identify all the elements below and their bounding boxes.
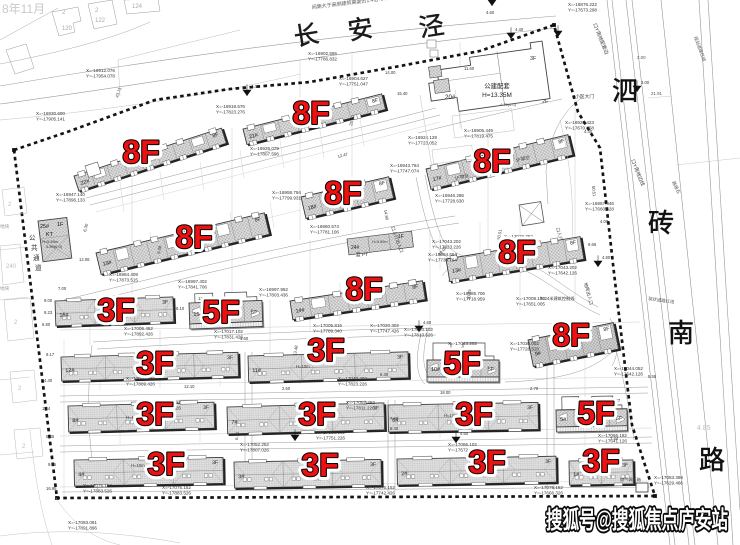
svg-text:公建配套: 公建配套 bbox=[484, 81, 510, 90]
svg-text:安: 安 bbox=[346, 14, 375, 46]
svg-text:5F: 5F bbox=[488, 367, 494, 373]
svg-text:X=-16926.079: X=-16926.079 bbox=[250, 146, 279, 151]
svg-text:8F: 8F bbox=[498, 234, 535, 270]
svg-text:4#: 4# bbox=[78, 472, 84, 478]
svg-text:1.44: 1.44 bbox=[42, 406, 51, 411]
svg-text:3F: 3F bbox=[455, 396, 492, 432]
svg-text:3F: 3F bbox=[97, 292, 134, 328]
svg-text:3F: 3F bbox=[162, 300, 168, 306]
svg-text:X=-16984.409: X=-16984.409 bbox=[109, 272, 138, 277]
svg-text:KT: KT bbox=[46, 232, 54, 238]
svg-text:砖: 砖 bbox=[648, 208, 674, 238]
svg-text:10#: 10# bbox=[431, 367, 440, 373]
svg-text:8.10: 8.10 bbox=[176, 306, 185, 311]
svg-text:6.30: 6.30 bbox=[380, 372, 389, 377]
svg-text:X=-16967.846: X=-16967.846 bbox=[585, 201, 614, 206]
svg-text:Y=-17799.931: Y=-17799.931 bbox=[272, 195, 301, 200]
svg-text:蓝 PT: 蓝 PT bbox=[356, 251, 368, 257]
svg-text:4.40: 4.40 bbox=[251, 84, 260, 89]
svg-text:燃气调压箱: 燃气调压箱 bbox=[620, 476, 641, 483]
svg-text:8F: 8F bbox=[473, 143, 510, 179]
svg-text:H=13.35M: H=13.35M bbox=[482, 92, 512, 99]
svg-text:泾: 泾 bbox=[417, 11, 446, 43]
svg-text:X=-16946.286: X=-16946.286 bbox=[435, 193, 464, 198]
svg-text:1#: 1# bbox=[573, 472, 579, 478]
svg-text:X=-16958.794: X=-16958.794 bbox=[272, 190, 301, 195]
svg-text:3#: 3# bbox=[238, 474, 244, 480]
svg-text:X=-16984.564: X=-16984.564 bbox=[428, 252, 457, 257]
svg-text:小区大门: 小区大门 bbox=[575, 93, 594, 100]
svg-text:9.25: 9.25 bbox=[48, 462, 57, 467]
svg-text:7#: 7# bbox=[231, 420, 237, 426]
svg-text:3F: 3F bbox=[298, 396, 335, 432]
svg-text:2.50: 2.50 bbox=[282, 386, 291, 391]
svg-text:3F: 3F bbox=[136, 345, 173, 381]
svg-text:240: 240 bbox=[6, 264, 17, 270]
svg-text:4.40: 4.40 bbox=[515, 27, 524, 32]
svg-text:Y=-17747.074: Y=-17747.074 bbox=[390, 168, 419, 173]
svg-text:Y=-17642.126: Y=-17642.126 bbox=[548, 270, 577, 275]
svg-text:Y=-17629.466: Y=-17629.466 bbox=[654, 480, 683, 485]
svg-text:X=-17052.252: X=-17052.252 bbox=[240, 442, 269, 447]
svg-text:9#: 9# bbox=[534, 351, 541, 358]
svg-text:5F: 5F bbox=[202, 294, 239, 330]
svg-text:50.51: 50.51 bbox=[591, 186, 597, 198]
svg-text:5.89(6.0): 5.89(6.0) bbox=[46, 244, 63, 249]
svg-text:3F: 3F bbox=[397, 354, 403, 360]
svg-text:Y=-17889.426: Y=-17889.426 bbox=[126, 381, 155, 386]
svg-text:Y=-17896.133: Y=-17896.133 bbox=[56, 197, 85, 202]
svg-text:X=-16960.574: X=-16960.574 bbox=[310, 224, 339, 229]
svg-text:3F: 3F bbox=[582, 443, 619, 479]
svg-text:Y=-17660.828: Y=-17660.828 bbox=[585, 206, 614, 211]
svg-text:道: 道 bbox=[35, 263, 42, 272]
svg-text:Y=-17823.276: Y=-17823.276 bbox=[216, 109, 245, 114]
svg-text:8F: 8F bbox=[345, 271, 382, 307]
svg-text:4.75(6.0): 4.75(6.0) bbox=[500, 102, 517, 107]
svg-text:Y=-17823.226: Y=-17823.226 bbox=[338, 381, 367, 386]
svg-text:Y=-17873.515: Y=-17873.515 bbox=[109, 277, 138, 282]
svg-text:X=-17075.152: X=-17075.152 bbox=[162, 485, 191, 490]
svg-text:3F: 3F bbox=[203, 405, 209, 411]
svg-text:Y=-17666.326: Y=-17666.326 bbox=[534, 490, 563, 495]
svg-text:X=-16905.449: X=-16905.449 bbox=[464, 128, 493, 133]
svg-text:15#: 15# bbox=[193, 312, 202, 318]
svg-text:X=-17005.816: X=-17005.816 bbox=[313, 323, 342, 328]
svg-text:H=10m: H=10m bbox=[131, 463, 145, 468]
svg-text:Y=-17723.052: Y=-17723.052 bbox=[408, 140, 437, 145]
svg-text:X=-16912.076: X=-16912.076 bbox=[86, 68, 115, 73]
svg-text:Y=-17781.106: Y=-17781.106 bbox=[310, 229, 339, 234]
svg-text:X=-17043.202: X=-17043.202 bbox=[548, 265, 577, 270]
svg-text:5F: 5F bbox=[443, 345, 480, 381]
svg-text:18.00: 18.00 bbox=[440, 390, 451, 395]
svg-text:5F: 5F bbox=[251, 310, 257, 316]
svg-text:16#: 16# bbox=[59, 312, 68, 318]
svg-text:X=-17020.302: X=-17020.302 bbox=[370, 323, 399, 328]
svg-text:4.60: 4.60 bbox=[423, 320, 432, 325]
svg-text:2#: 2# bbox=[401, 471, 407, 477]
svg-text:8F: 8F bbox=[412, 284, 419, 291]
svg-text:南: 南 bbox=[668, 318, 694, 348]
svg-text:搜狐号@搜狐焦点庐安站: 搜狐号@搜狐焦点庐安站 bbox=[546, 506, 728, 534]
svg-text:Y=-17819.475: Y=-17819.475 bbox=[464, 133, 493, 138]
svg-text:3F: 3F bbox=[136, 396, 173, 432]
svg-text:3F: 3F bbox=[227, 355, 233, 361]
svg-text:Y=-17728.528: Y=-17728.528 bbox=[510, 346, 539, 351]
svg-text:8F: 8F bbox=[570, 240, 577, 247]
svg-text:Y=-17892.426: Y=-17892.426 bbox=[124, 331, 153, 336]
svg-text:4.60: 4.60 bbox=[486, 10, 495, 15]
svg-text:X=-16997.952: X=-16997.952 bbox=[259, 287, 288, 292]
svg-text:Y=-17823.226: Y=-17823.226 bbox=[432, 244, 461, 249]
svg-text:X=-17075.152: X=-17075.152 bbox=[366, 485, 395, 490]
svg-text:3F: 3F bbox=[527, 405, 533, 411]
svg-text:X=-17044.052: X=-17044.052 bbox=[614, 366, 643, 371]
svg-text:20#: 20# bbox=[445, 94, 456, 101]
svg-text:3F: 3F bbox=[370, 462, 376, 468]
svg-text:9.00: 9.00 bbox=[44, 298, 53, 303]
svg-text:Y=-17651.005: Y=-17651.005 bbox=[516, 301, 545, 306]
svg-text:Y=-17642.126: Y=-17642.126 bbox=[614, 371, 643, 376]
svg-text:Y=-17670.358: Y=-17670.358 bbox=[565, 125, 594, 130]
svg-text:H=5.89m: H=5.89m bbox=[372, 240, 388, 244]
svg-text:X=-16902.565: X=-16902.565 bbox=[308, 51, 337, 56]
svg-text:2.70: 2.70 bbox=[530, 386, 539, 391]
svg-text:Y=-17841.706: Y=-17841.706 bbox=[178, 284, 207, 289]
svg-text:X=-17043.202: X=-17043.202 bbox=[338, 376, 367, 381]
svg-text:Y=-17807.026: Y=-17807.026 bbox=[240, 447, 269, 452]
svg-text:X=-17020.102: X=-17020.102 bbox=[404, 327, 433, 332]
svg-text:Y=-17747.426: Y=-17747.426 bbox=[370, 328, 399, 333]
svg-text:25#: 25# bbox=[40, 224, 49, 230]
svg-text:Y=-17734.794: Y=-17734.794 bbox=[428, 257, 457, 262]
svg-text:9.23: 9.23 bbox=[44, 310, 53, 315]
svg-text:h≤24米建筑控制线: h≤24米建筑控制线 bbox=[540, 295, 575, 302]
svg-text:X=-16943.764: X=-16943.764 bbox=[390, 163, 419, 168]
svg-text:Y=-17807.596: Y=-17807.596 bbox=[250, 151, 279, 156]
svg-text:5.35: 5.35 bbox=[46, 434, 55, 439]
svg-text:3.00: 3.00 bbox=[637, 55, 646, 60]
svg-text:X=-16876.222: X=-16876.222 bbox=[568, 2, 597, 7]
svg-text:X=-16904.627: X=-16904.627 bbox=[339, 76, 368, 81]
svg-text:X=-16997.402: X=-16997.402 bbox=[178, 279, 207, 284]
svg-text:7.80: 7.80 bbox=[390, 416, 399, 421]
svg-text:X=-16947.140: X=-16947.140 bbox=[56, 192, 85, 197]
svg-text:16.95: 16.95 bbox=[46, 486, 57, 491]
svg-text:Y=-17813.526: Y=-17813.526 bbox=[404, 332, 433, 337]
svg-text:X=-16985.706: X=-16985.706 bbox=[456, 291, 485, 296]
svg-text:3F: 3F bbox=[545, 459, 551, 465]
svg-text:7.00: 7.00 bbox=[58, 286, 67, 291]
svg-text:12#: 12# bbox=[65, 368, 74, 374]
svg-text:公: 公 bbox=[29, 235, 36, 242]
svg-text:路: 路 bbox=[699, 445, 725, 475]
svg-text:5.55: 5.55 bbox=[648, 374, 657, 379]
svg-text:24#: 24# bbox=[351, 245, 360, 251]
svg-text:8年11月: 8年11月 bbox=[2, 2, 45, 16]
svg-text:3F: 3F bbox=[147, 446, 184, 482]
svg-text:Y=-17751.047: Y=-17751.047 bbox=[339, 81, 368, 86]
svg-text:8F: 8F bbox=[122, 134, 159, 170]
svg-text:11#: 11# bbox=[252, 368, 261, 374]
svg-text:12.10: 12.10 bbox=[184, 384, 195, 389]
svg-text:地块: 地块 bbox=[0, 223, 10, 230]
svg-text:Y=-17954.078: Y=-17954.078 bbox=[86, 73, 115, 78]
svg-text:Y=-17742.426: Y=-17742.426 bbox=[366, 490, 395, 495]
svg-text:3F: 3F bbox=[530, 56, 537, 62]
svg-text:Y=-17803.436: Y=-17803.436 bbox=[259, 292, 288, 297]
svg-text:5F: 5F bbox=[616, 416, 622, 422]
svg-text:21.91: 21.91 bbox=[651, 91, 663, 96]
svg-text:8F: 8F bbox=[603, 326, 610, 333]
svg-text:8F: 8F bbox=[292, 95, 329, 131]
svg-text:5F: 5F bbox=[577, 395, 614, 431]
svg-text:Y=-17718.959: Y=-17718.959 bbox=[456, 296, 485, 301]
svg-text:3F: 3F bbox=[622, 462, 628, 468]
svg-text:8F: 8F bbox=[324, 175, 361, 211]
svg-text:3F: 3F bbox=[212, 460, 218, 466]
svg-text:X=-16926.423: X=-16926.423 bbox=[565, 120, 594, 125]
svg-text:6.40: 6.40 bbox=[390, 426, 399, 431]
svg-text:3F: 3F bbox=[307, 332, 344, 368]
svg-text:X=-17066.182: X=-17066.182 bbox=[598, 433, 627, 438]
svg-text:15.40: 15.40 bbox=[397, 91, 408, 96]
svg-text:4.80: 4.80 bbox=[602, 255, 611, 260]
svg-text:X=-17008.170: X=-17008.170 bbox=[516, 296, 545, 301]
svg-text:2F: 2F bbox=[542, 99, 549, 105]
svg-text:4.85: 4.85 bbox=[697, 425, 711, 432]
svg-text:X=-16924.129: X=-16924.129 bbox=[408, 135, 437, 140]
svg-text:Y=-17751.226: Y=-17751.226 bbox=[316, 435, 345, 440]
svg-text:Y=-17728.630: Y=-17728.630 bbox=[435, 198, 464, 203]
svg-text:6.80: 6.80 bbox=[42, 322, 51, 327]
svg-text:Y=-17831.426: Y=-17831.426 bbox=[214, 334, 243, 339]
svg-text:地块: 地块 bbox=[0, 285, 10, 292]
svg-text:X=-17075.152: X=-17075.152 bbox=[534, 485, 563, 490]
svg-text:6.31: 6.31 bbox=[234, 431, 240, 440]
svg-text:5#: 5# bbox=[560, 417, 566, 423]
svg-text:3.00: 3.00 bbox=[641, 80, 650, 85]
svg-text:X=-17052.252: X=-17052.252 bbox=[346, 400, 375, 405]
svg-text:Y=-17883.526: Y=-17883.526 bbox=[162, 490, 191, 495]
svg-text:8F: 8F bbox=[175, 219, 212, 255]
svg-text:Y=-17811.226: Y=-17811.226 bbox=[346, 405, 375, 410]
svg-text:通: 通 bbox=[33, 253, 40, 262]
svg-text:长: 长 bbox=[292, 20, 321, 52]
svg-text:14.00: 14.00 bbox=[385, 70, 396, 75]
svg-text:1F: 1F bbox=[57, 222, 64, 228]
svg-text:共: 共 bbox=[31, 243, 38, 252]
svg-text:X=-17083.061: X=-17083.061 bbox=[68, 520, 97, 525]
svg-text:120: 120 bbox=[62, 26, 73, 32]
svg-text:9.17: 9.17 bbox=[46, 352, 55, 357]
svg-text:124: 124 bbox=[132, 4, 143, 10]
svg-text:X=-17083.396: X=-17083.396 bbox=[654, 475, 683, 480]
svg-text:Y=-17673.298: Y=-17673.298 bbox=[568, 7, 597, 12]
svg-text:X=-16930.600: X=-16930.600 bbox=[36, 111, 65, 116]
svg-text:X=-17043.202: X=-17043.202 bbox=[432, 239, 461, 244]
svg-text:泗: 泗 bbox=[612, 76, 638, 106]
svg-text:11.60: 11.60 bbox=[464, 66, 475, 71]
svg-text:Y=-17883.526: Y=-17883.526 bbox=[83, 488, 112, 493]
svg-text:8F: 8F bbox=[552, 317, 589, 353]
svg-text:12.08: 12.08 bbox=[79, 257, 90, 262]
svg-text:122: 122 bbox=[95, 18, 106, 24]
svg-text:3F: 3F bbox=[468, 444, 505, 480]
svg-text:Y=-17786.832: Y=-17786.832 bbox=[308, 56, 337, 61]
svg-text:X=-17075.152: X=-17075.152 bbox=[83, 483, 112, 488]
svg-text:X=-17030.052: X=-17030.052 bbox=[510, 341, 539, 346]
svg-text:3F: 3F bbox=[301, 447, 338, 483]
svg-text:8#: 8# bbox=[72, 418, 78, 424]
svg-text:Y=-17905.141: Y=-17905.141 bbox=[36, 116, 65, 121]
svg-text:4.00: 4.00 bbox=[600, 219, 609, 224]
svg-text:9.66: 9.66 bbox=[588, 242, 597, 247]
svg-text:X=-16919.576: X=-16919.576 bbox=[216, 104, 245, 109]
svg-text:4.40: 4.40 bbox=[44, 378, 53, 383]
